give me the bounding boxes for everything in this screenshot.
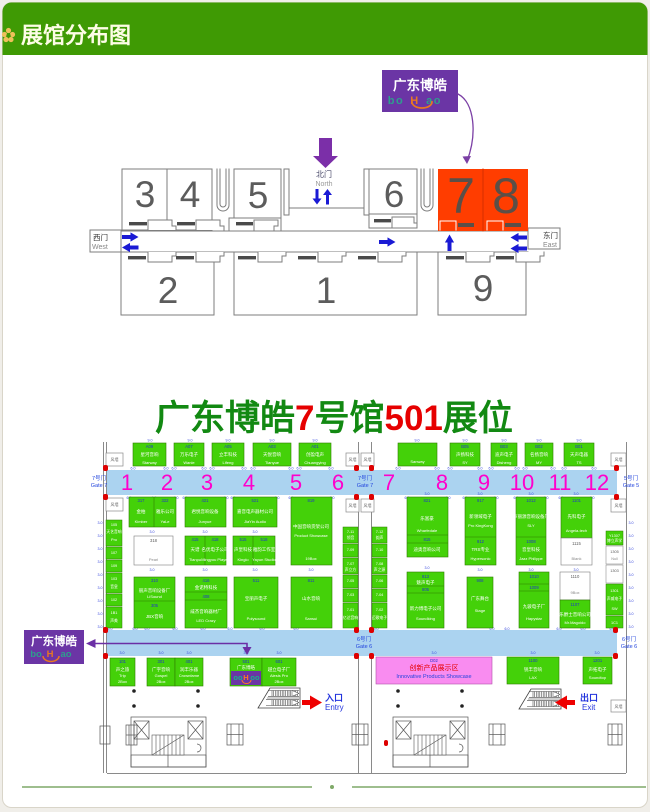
svg-text:Wanle: Wanle <box>183 460 195 465</box>
svg-text:3.0: 3.0 <box>98 625 103 629</box>
svg-text:威杰音响器材厂: 威杰音响器材厂 <box>190 608 222 615</box>
svg-text:3.0: 3.0 <box>425 566 430 570</box>
svg-text:102: 102 <box>111 598 117 602</box>
svg-text:Pro: Pro <box>111 538 117 542</box>
svg-text:山水音响: 山水音响 <box>302 595 320 602</box>
svg-text:Gate 5: Gate 5 <box>623 483 640 489</box>
svg-text:Alesis Pro: Alesis Pro <box>270 673 289 678</box>
svg-text:322: 322 <box>162 498 170 503</box>
svg-text:1009: 1009 <box>529 585 539 590</box>
svg-text:6.0: 6.0 <box>396 467 401 471</box>
svg-text:风墙: 风墙 <box>111 456 119 462</box>
svg-text:名扬音响: 名扬音响 <box>530 451 548 458</box>
svg-text:YaLe: YaLe <box>160 519 170 524</box>
svg-text:风墙: 风墙 <box>615 456 623 462</box>
svg-text:Angela-tech: Angela-tech <box>566 528 587 533</box>
svg-text:1010: 1010 <box>529 574 539 579</box>
svg-text:君悦音响设备: 君悦音响设备 <box>192 508 219 515</box>
svg-text:3.0: 3.0 <box>531 651 536 655</box>
svg-text:813: 813 <box>422 574 430 579</box>
svg-text:Starway: Starway <box>142 460 156 465</box>
svg-text:TS: TS <box>576 460 581 465</box>
svg-text:Sanway: Sanway <box>410 459 424 464</box>
svg-text:3.0: 3.0 <box>595 651 600 655</box>
svg-text:TRS专业: TRS专业 <box>472 546 490 553</box>
svg-text:oo: oo <box>233 673 243 682</box>
svg-text:7-06: 7-06 <box>376 579 384 583</box>
svg-text:迪声电子: 迪声电子 <box>495 451 513 458</box>
svg-text:3.0: 3.0 <box>629 612 634 616</box>
svg-text:5号门: 5号门 <box>624 474 638 482</box>
svg-text:ao: ao <box>60 649 71 660</box>
svg-text:Chuangying: Chuangying <box>304 460 325 465</box>
svg-text:6.0: 6.0 <box>228 627 233 631</box>
svg-text:7-12: 7-12 <box>376 530 384 534</box>
svg-text:B02: B02 <box>535 444 543 449</box>
svg-text:Jazz Philippe: Jazz Philippe <box>519 556 543 561</box>
svg-text:5: 5 <box>248 175 269 216</box>
svg-text:亿达音响: 亿达音响 <box>343 615 358 620</box>
svg-text:3.0: 3.0 <box>120 651 125 655</box>
svg-text:3.0: 3.0 <box>309 568 314 572</box>
svg-text:金柏: 金柏 <box>137 508 146 515</box>
svg-text:魅声电子: 魅声电子 <box>417 579 435 586</box>
svg-text:Tianyue: Tianyue <box>265 460 280 465</box>
svg-text:博立声学: 博立声学 <box>607 538 622 543</box>
svg-text:音皇科技: 音皇科技 <box>522 546 540 553</box>
svg-text:418: 418 <box>212 537 220 542</box>
svg-text:109: 109 <box>111 564 117 568</box>
svg-text:3.0: 3.0 <box>629 521 634 525</box>
svg-text:9.0: 9.0 <box>463 439 468 443</box>
svg-text:2Box: 2Box <box>274 679 283 684</box>
svg-text:6: 6 <box>332 470 344 495</box>
svg-text:2Box: 2Box <box>118 679 127 684</box>
svg-text:6.0: 6.0 <box>489 467 494 471</box>
svg-text:6: 6 <box>384 174 405 215</box>
svg-text:ao: ao <box>426 95 442 107</box>
svg-text:SLY: SLY <box>527 523 535 528</box>
svg-text:Null: Null <box>611 557 618 561</box>
svg-text:Gospel: Gospel <box>155 673 168 678</box>
svg-text:风墙: 风墙 <box>615 703 623 709</box>
svg-text:3.0: 3.0 <box>629 586 634 590</box>
svg-text:3.0: 3.0 <box>187 651 192 655</box>
svg-text:103: 103 <box>111 577 117 581</box>
svg-text:广东博皓: 广东博皓 <box>393 77 447 93</box>
svg-text:3.0: 3.0 <box>98 612 103 616</box>
svg-text:7: 7 <box>447 168 475 224</box>
svg-text:MY: MY <box>536 460 542 465</box>
svg-text:917: 917 <box>477 498 485 503</box>
svg-text:107: 107 <box>111 551 117 555</box>
svg-text:广字音响: 广字音响 <box>152 666 170 673</box>
svg-text:9.0: 9.0 <box>577 439 582 443</box>
svg-text:LAX: LAX <box>529 675 537 680</box>
svg-text:Disheng: Disheng <box>497 460 512 465</box>
svg-text:317: 317 <box>138 498 146 503</box>
svg-text:Hypersonic: Hypersonic <box>470 556 490 561</box>
svg-text:1100: 1100 <box>528 658 538 663</box>
svg-text:3.0: 3.0 <box>629 560 634 564</box>
svg-text:3.0: 3.0 <box>98 586 103 590</box>
svg-text:3.0: 3.0 <box>150 568 155 572</box>
svg-text:Gate 7: Gate 7 <box>357 483 374 489</box>
svg-text:先科电子: 先科电子 <box>568 513 586 520</box>
svg-text:421: 421 <box>202 498 210 503</box>
svg-text:408: 408 <box>203 594 211 599</box>
svg-text:7-04: 7-04 <box>376 593 384 597</box>
svg-text:Gate 6: Gate 6 <box>621 644 638 650</box>
svg-text:入口: 入口 <box>324 693 343 703</box>
svg-text:9.0: 9.0 <box>537 439 542 443</box>
svg-text:6.0: 6.0 <box>551 467 556 471</box>
svg-text:Exit: Exit <box>582 703 596 712</box>
svg-text:D02: D02 <box>430 658 438 663</box>
svg-text:819: 819 <box>308 498 316 503</box>
svg-text:Kinglo: Kinglo <box>237 557 249 562</box>
svg-text:3.0: 3.0 <box>425 492 430 496</box>
svg-text:2Box: 2Box <box>156 679 165 684</box>
svg-text:3.0: 3.0 <box>98 560 103 564</box>
svg-text:3: 3 <box>135 174 156 215</box>
svg-text:9.0: 9.0 <box>313 439 318 443</box>
svg-text:Stage: Stage <box>475 608 486 613</box>
svg-text:3.0: 3.0 <box>98 573 103 577</box>
svg-text:Hapystar: Hapystar <box>526 616 543 621</box>
svg-text:3.0: 3.0 <box>629 599 634 603</box>
svg-text:East: East <box>543 242 557 249</box>
svg-text:风墙: 风墙 <box>364 502 372 508</box>
svg-text:乐爵士音响公司: 乐爵士音响公司 <box>559 611 591 618</box>
svg-text:声皇科技: 声皇科技 <box>234 546 252 553</box>
svg-text:JBX音响: JBX音响 <box>146 613 164 620</box>
svg-text:7-01: 7-01 <box>347 608 355 612</box>
svg-text:6.0: 6.0 <box>164 467 169 471</box>
svg-text:Crownfame: Crownfame <box>179 673 200 678</box>
svg-text:韵声: 韵声 <box>376 535 384 540</box>
svg-text:广东舞台: 广东舞台 <box>471 595 489 602</box>
svg-text:6.0: 6.0 <box>562 467 567 471</box>
svg-text:oo: oo <box>250 673 260 682</box>
svg-text:4: 4 <box>243 470 255 495</box>
svg-text:6.0: 6.0 <box>202 467 207 471</box>
svg-text:天声电器: 天声电器 <box>570 451 588 458</box>
svg-text:3.0: 3.0 <box>432 651 437 655</box>
svg-text:511: 511 <box>253 578 260 583</box>
svg-text:Soundtop: Soundtop <box>589 675 607 680</box>
svg-text:Yayun Studio: Yayun Studio <box>252 557 276 562</box>
svg-text:811: 811 <box>308 578 315 583</box>
svg-text:天谱: 天谱 <box>191 546 200 553</box>
svg-text:Entry: Entry <box>325 703 344 712</box>
svg-text:6.0: 6.0 <box>131 467 136 471</box>
svg-text:6.0: 6.0 <box>329 467 334 471</box>
svg-text:310: 310 <box>151 578 159 583</box>
svg-text:越立电子厂: 越立电子厂 <box>268 666 291 673</box>
svg-text:9.0: 9.0 <box>188 439 193 443</box>
svg-text:6.0: 6.0 <box>448 467 453 471</box>
svg-text:Product Showcase: Product Showcase <box>294 533 328 538</box>
svg-text:丽声音响设备厂: 丽声音响设备厂 <box>139 587 171 594</box>
svg-text:Polysound: Polysound <box>247 616 266 621</box>
svg-text:912: 912 <box>477 539 485 544</box>
svg-text:3.0: 3.0 <box>203 530 208 534</box>
svg-text:7-03: 7-03 <box>347 593 355 597</box>
svg-text:新力博电子公司: 新力博电子公司 <box>410 605 442 612</box>
svg-text:H: H <box>243 673 248 682</box>
svg-text:101: 101 <box>119 659 127 664</box>
svg-text:7号门: 7号门 <box>92 474 106 482</box>
svg-text:6.0: 6.0 <box>478 467 483 471</box>
svg-text:广东博皓7号馆501展位: 广东博皓7号馆501展位 <box>155 399 513 438</box>
svg-text:风墙: 风墙 <box>349 456 357 462</box>
svg-text:Lifeng: Lifeng <box>223 460 234 465</box>
svg-text:9.0: 9.0 <box>148 439 153 443</box>
svg-text:JiaYin Audio: JiaYin Audio <box>244 519 267 524</box>
svg-text:1115: 1115 <box>572 541 581 546</box>
svg-text:Trip: Trip <box>119 673 127 678</box>
svg-text:Innovative Products Showcase: Innovative Products Showcase <box>396 674 471 680</box>
svg-text:815: 815 <box>424 537 432 542</box>
svg-text:7-07: 7-07 <box>347 562 355 566</box>
svg-text:1101: 1101 <box>572 498 582 503</box>
svg-text:3.0: 3.0 <box>98 534 103 538</box>
svg-text:3.0: 3.0 <box>478 492 483 496</box>
svg-text:19Box: 19Box <box>305 556 316 561</box>
svg-text:3.0: 3.0 <box>98 521 103 525</box>
svg-text:风墙: 风墙 <box>615 502 623 508</box>
svg-text:1012: 1012 <box>526 498 536 503</box>
svg-text:6.0: 6.0 <box>242 467 247 471</box>
svg-text:Gate 7: Gate 7 <box>91 483 108 489</box>
svg-text:1C1: 1C1 <box>611 621 618 625</box>
svg-text:6.0: 6.0 <box>289 467 294 471</box>
svg-text:8: 8 <box>436 470 448 495</box>
svg-text:3.0: 3.0 <box>98 547 103 551</box>
svg-text:西门: 西门 <box>93 233 108 242</box>
svg-text:9Box: 9Box <box>570 590 579 595</box>
svg-text:908: 908 <box>477 578 485 583</box>
svg-text:H: H <box>410 95 419 107</box>
svg-text:bo: bo <box>388 95 404 107</box>
svg-text:415: 415 <box>192 537 200 542</box>
svg-text:6.0: 6.0 <box>210 467 215 471</box>
svg-text:新领域电子: 新领域电子 <box>469 513 492 520</box>
svg-text:雅乐公司: 雅乐公司 <box>156 508 174 515</box>
svg-text:3.0: 3.0 <box>629 534 634 538</box>
svg-text:8: 8 <box>492 168 520 224</box>
svg-text:1301: 1301 <box>610 589 618 593</box>
svg-text:H: H <box>47 649 54 660</box>
svg-text:Soundking: Soundking <box>416 616 435 621</box>
svg-text:6.0: 6.0 <box>515 467 520 471</box>
svg-text:乐富豪: 乐富豪 <box>420 515 434 522</box>
svg-text:Junyue: Junyue <box>199 519 213 524</box>
svg-text:风墙: 风墙 <box>111 501 119 507</box>
svg-text:广东博皓: 广东博皓 <box>237 664 255 671</box>
svg-text:3.0: 3.0 <box>150 530 155 534</box>
svg-text:音皇: 音皇 <box>110 584 118 589</box>
svg-text:3.0: 3.0 <box>529 568 534 572</box>
svg-text:9.0: 9.0 <box>502 439 507 443</box>
svg-text:9.0: 9.0 <box>226 439 231 443</box>
svg-text:6号门: 6号门 <box>622 635 636 643</box>
svg-text:3.0: 3.0 <box>629 573 634 577</box>
svg-text:416: 416 <box>203 578 211 583</box>
svg-text:11: 11 <box>549 470 572 495</box>
svg-text:7-08: 7-08 <box>376 562 384 566</box>
svg-text:301: 301 <box>158 659 166 664</box>
svg-text:6号门: 6号门 <box>357 635 371 643</box>
svg-text:锐丰音响: 锐丰音响 <box>524 666 542 673</box>
svg-text:Wharfedale: Wharfedale <box>417 528 438 533</box>
svg-text:宝丽声电子: 宝丽声电子 <box>245 595 268 602</box>
svg-text:6.0: 6.0 <box>523 467 528 471</box>
svg-text:Blank: Blank <box>571 556 581 561</box>
svg-text:2: 2 <box>161 470 173 495</box>
svg-text:1305: 1305 <box>610 550 618 554</box>
svg-text:401: 401 <box>186 659 194 664</box>
svg-text:2: 2 <box>158 270 179 311</box>
svg-text:805: 805 <box>422 587 430 592</box>
svg-text:521: 521 <box>252 498 260 503</box>
svg-text:5: 5 <box>290 470 302 495</box>
svg-text:领音: 领音 <box>347 535 355 540</box>
svg-text:东门: 东门 <box>543 230 558 240</box>
svg-text:Pearl: Pearl <box>149 557 158 562</box>
svg-text:B03: B03 <box>500 444 508 449</box>
svg-text:广东博皓: 广东博皓 <box>31 634 77 648</box>
svg-text:6.0: 6.0 <box>505 627 510 631</box>
svg-text:3.0: 3.0 <box>529 492 534 496</box>
svg-text:3.0: 3.0 <box>253 568 258 572</box>
svg-text:9.0: 9.0 <box>270 439 275 443</box>
svg-text:北门: 北门 <box>316 169 332 179</box>
svg-text:6.0: 6.0 <box>251 467 256 471</box>
svg-text:1: 1 <box>121 470 133 495</box>
svg-text:1303: 1303 <box>610 569 618 573</box>
svg-text:West: West <box>92 244 108 251</box>
svg-text:名优电子公司: 名优电子公司 <box>202 546 229 553</box>
svg-text:12: 12 <box>585 470 609 495</box>
svg-text:Tianpu: Tianpu <box>189 557 201 562</box>
svg-text:LiSound: LiSound <box>147 594 162 599</box>
svg-text:7: 7 <box>383 470 395 495</box>
svg-text:雅韵工作室: 雅韵工作室 <box>253 546 276 553</box>
svg-text:4: 4 <box>180 174 201 215</box>
svg-text:声威电子: 声威电子 <box>607 596 622 601</box>
svg-text:金诺特科技: 金诺特科技 <box>195 584 218 591</box>
svg-text:A03: A03 <box>268 444 276 449</box>
svg-text:B01: B01 <box>575 444 583 449</box>
svg-text:声美: 声美 <box>110 618 118 623</box>
svg-text:迈歌电子: 迈歌电子 <box>372 615 387 620</box>
svg-text:星河音响: 星河音响 <box>141 451 159 458</box>
svg-text:声扬科技: 声扬科技 <box>456 451 474 458</box>
svg-text:天悦音响: 天悦音响 <box>263 451 281 458</box>
svg-text:3: 3 <box>201 470 213 495</box>
svg-text:9.0: 9.0 <box>415 439 420 443</box>
svg-text:North: North <box>315 181 332 188</box>
svg-text:Y1307: Y1307 <box>609 534 620 538</box>
svg-text:821: 821 <box>424 498 432 503</box>
svg-text:风墙: 风墙 <box>364 456 372 462</box>
svg-text:7-02: 7-02 <box>376 608 384 612</box>
svg-text:SW: SW <box>611 607 618 611</box>
svg-text:3.0: 3.0 <box>629 547 634 551</box>
svg-text:7-09: 7-09 <box>347 548 355 552</box>
svg-text:润丰乐器: 润丰乐器 <box>180 666 198 673</box>
svg-text:A09: A09 <box>146 444 154 449</box>
svg-text:3.0: 3.0 <box>98 599 103 603</box>
svg-text:Sansui: Sansui <box>305 616 317 621</box>
svg-text:声立方: 声立方 <box>345 567 357 572</box>
svg-text:B05: B05 <box>461 444 469 449</box>
svg-text:Pro KingKong: Pro KingKong <box>468 523 493 528</box>
svg-text:3.0: 3.0 <box>253 530 258 534</box>
svg-text:7号门: 7号门 <box>358 474 372 482</box>
svg-text:Kimber: Kimber <box>135 519 148 524</box>
svg-text:SY: SY <box>462 460 468 465</box>
svg-text:创盈电声: 创盈电声 <box>306 451 324 458</box>
svg-text:6.0: 6.0 <box>172 467 177 471</box>
svg-text:6.0: 6.0 <box>297 467 302 471</box>
svg-text:515: 515 <box>240 537 248 542</box>
svg-text:Mingyou Player: Mingyou Player <box>201 557 229 562</box>
svg-text:3.0: 3.0 <box>478 568 483 572</box>
svg-text:声之旅: 声之旅 <box>116 666 130 673</box>
svg-text:中国音响货架公司: 中国音响货架公司 <box>293 523 329 530</box>
svg-text:1110: 1110 <box>571 574 580 579</box>
svg-text:1: 1 <box>316 270 337 311</box>
svg-text:出口: 出口 <box>580 692 598 703</box>
svg-text:bo: bo <box>30 649 42 660</box>
svg-text:7-10: 7-10 <box>376 548 384 552</box>
svg-text:万乐电子: 万乐电子 <box>180 451 198 458</box>
svg-text:6.0: 6.0 <box>435 467 440 471</box>
svg-text:305: 305 <box>151 603 159 608</box>
svg-text:风墙: 风墙 <box>349 502 357 508</box>
svg-text:1008: 1008 <box>526 539 536 544</box>
svg-text:1201: 1201 <box>593 658 603 663</box>
svg-text:3.0: 3.0 <box>574 492 579 496</box>
svg-text:105: 105 <box>111 523 117 527</box>
svg-text:601: 601 <box>276 659 284 664</box>
svg-text:1B1: 1B1 <box>111 611 118 615</box>
svg-text:501: 501 <box>243 659 251 664</box>
svg-text:7-11: 7-11 <box>347 530 354 534</box>
svg-text:创新产品展示区: 创新产品展示区 <box>410 663 459 672</box>
svg-text:天艺音响: 天艺音响 <box>106 529 121 534</box>
svg-text:518: 518 <box>261 537 269 542</box>
svg-text:立丰科技: 立丰科技 <box>219 451 237 458</box>
svg-text:318: 318 <box>150 538 158 543</box>
svg-text:3.0: 3.0 <box>277 651 282 655</box>
svg-text:3.0: 3.0 <box>574 568 579 572</box>
svg-text:九骏电子厂: 九骏电子厂 <box>523 603 546 610</box>
svg-text:Mr.Magoido: Mr.Magoido <box>565 620 587 625</box>
svg-text:7-05: 7-05 <box>347 579 355 583</box>
svg-text:声丽源音响设备厂: 声丽源音响设备厂 <box>513 513 549 520</box>
svg-text:6.0: 6.0 <box>592 467 597 471</box>
svg-text:A01: A01 <box>311 444 319 449</box>
svg-text:2Box: 2Box <box>184 679 193 684</box>
svg-text:嘉音电声器材公司: 嘉音电声器材公司 <box>237 508 273 515</box>
svg-text:3.0: 3.0 <box>203 568 208 572</box>
svg-text:声拓电子: 声拓电子 <box>589 666 607 673</box>
svg-text:LED Crazy: LED Crazy <box>196 618 215 623</box>
